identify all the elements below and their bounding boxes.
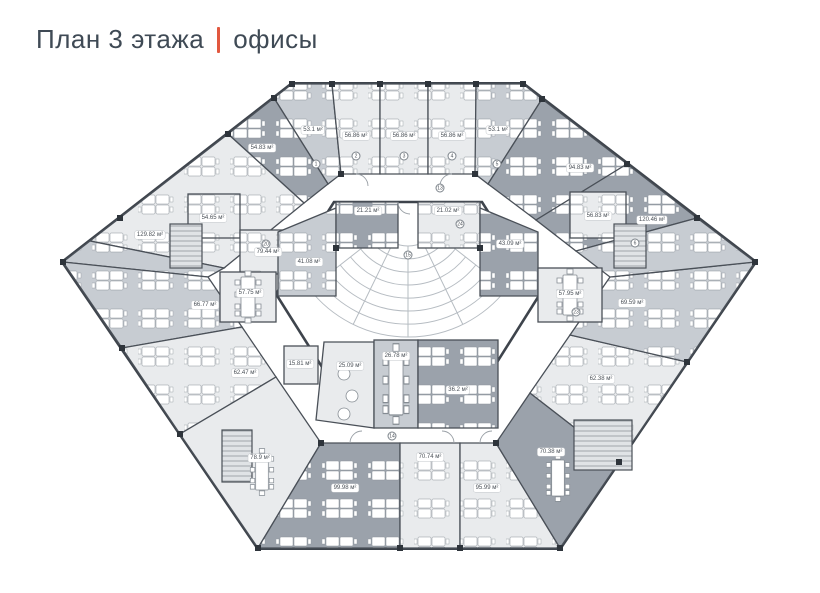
page-subtitle: офисы <box>233 24 318 55</box>
room-left-mid-office <box>278 208 336 296</box>
room-center-top-left <box>336 202 398 248</box>
room-center-bottom-right <box>418 340 498 428</box>
room-bottom-office-2 <box>400 443 460 548</box>
floor-plan-page: 53.1 м²56.86 м²56.86 м²56.86 м²53.1 м²54… <box>0 0 820 593</box>
stair-core-lower-right <box>574 420 632 470</box>
room-top-office-1 <box>332 84 380 174</box>
room-center-top-right <box>418 202 480 248</box>
stair-core-upper-left <box>170 224 202 268</box>
stair-core-lower-left <box>222 430 252 482</box>
page-title: План 3 этажа <box>36 24 204 55</box>
page-header: План 3 этажа офисы <box>36 24 318 55</box>
room-small-office <box>284 346 318 384</box>
room-top-office-2 <box>380 84 428 174</box>
floor-plan-svg <box>0 0 820 593</box>
room-top-office-3 <box>428 84 476 174</box>
room-right-mid-office <box>480 208 538 296</box>
stair-core-upper-right <box>614 224 646 268</box>
title-separator <box>217 27 220 53</box>
